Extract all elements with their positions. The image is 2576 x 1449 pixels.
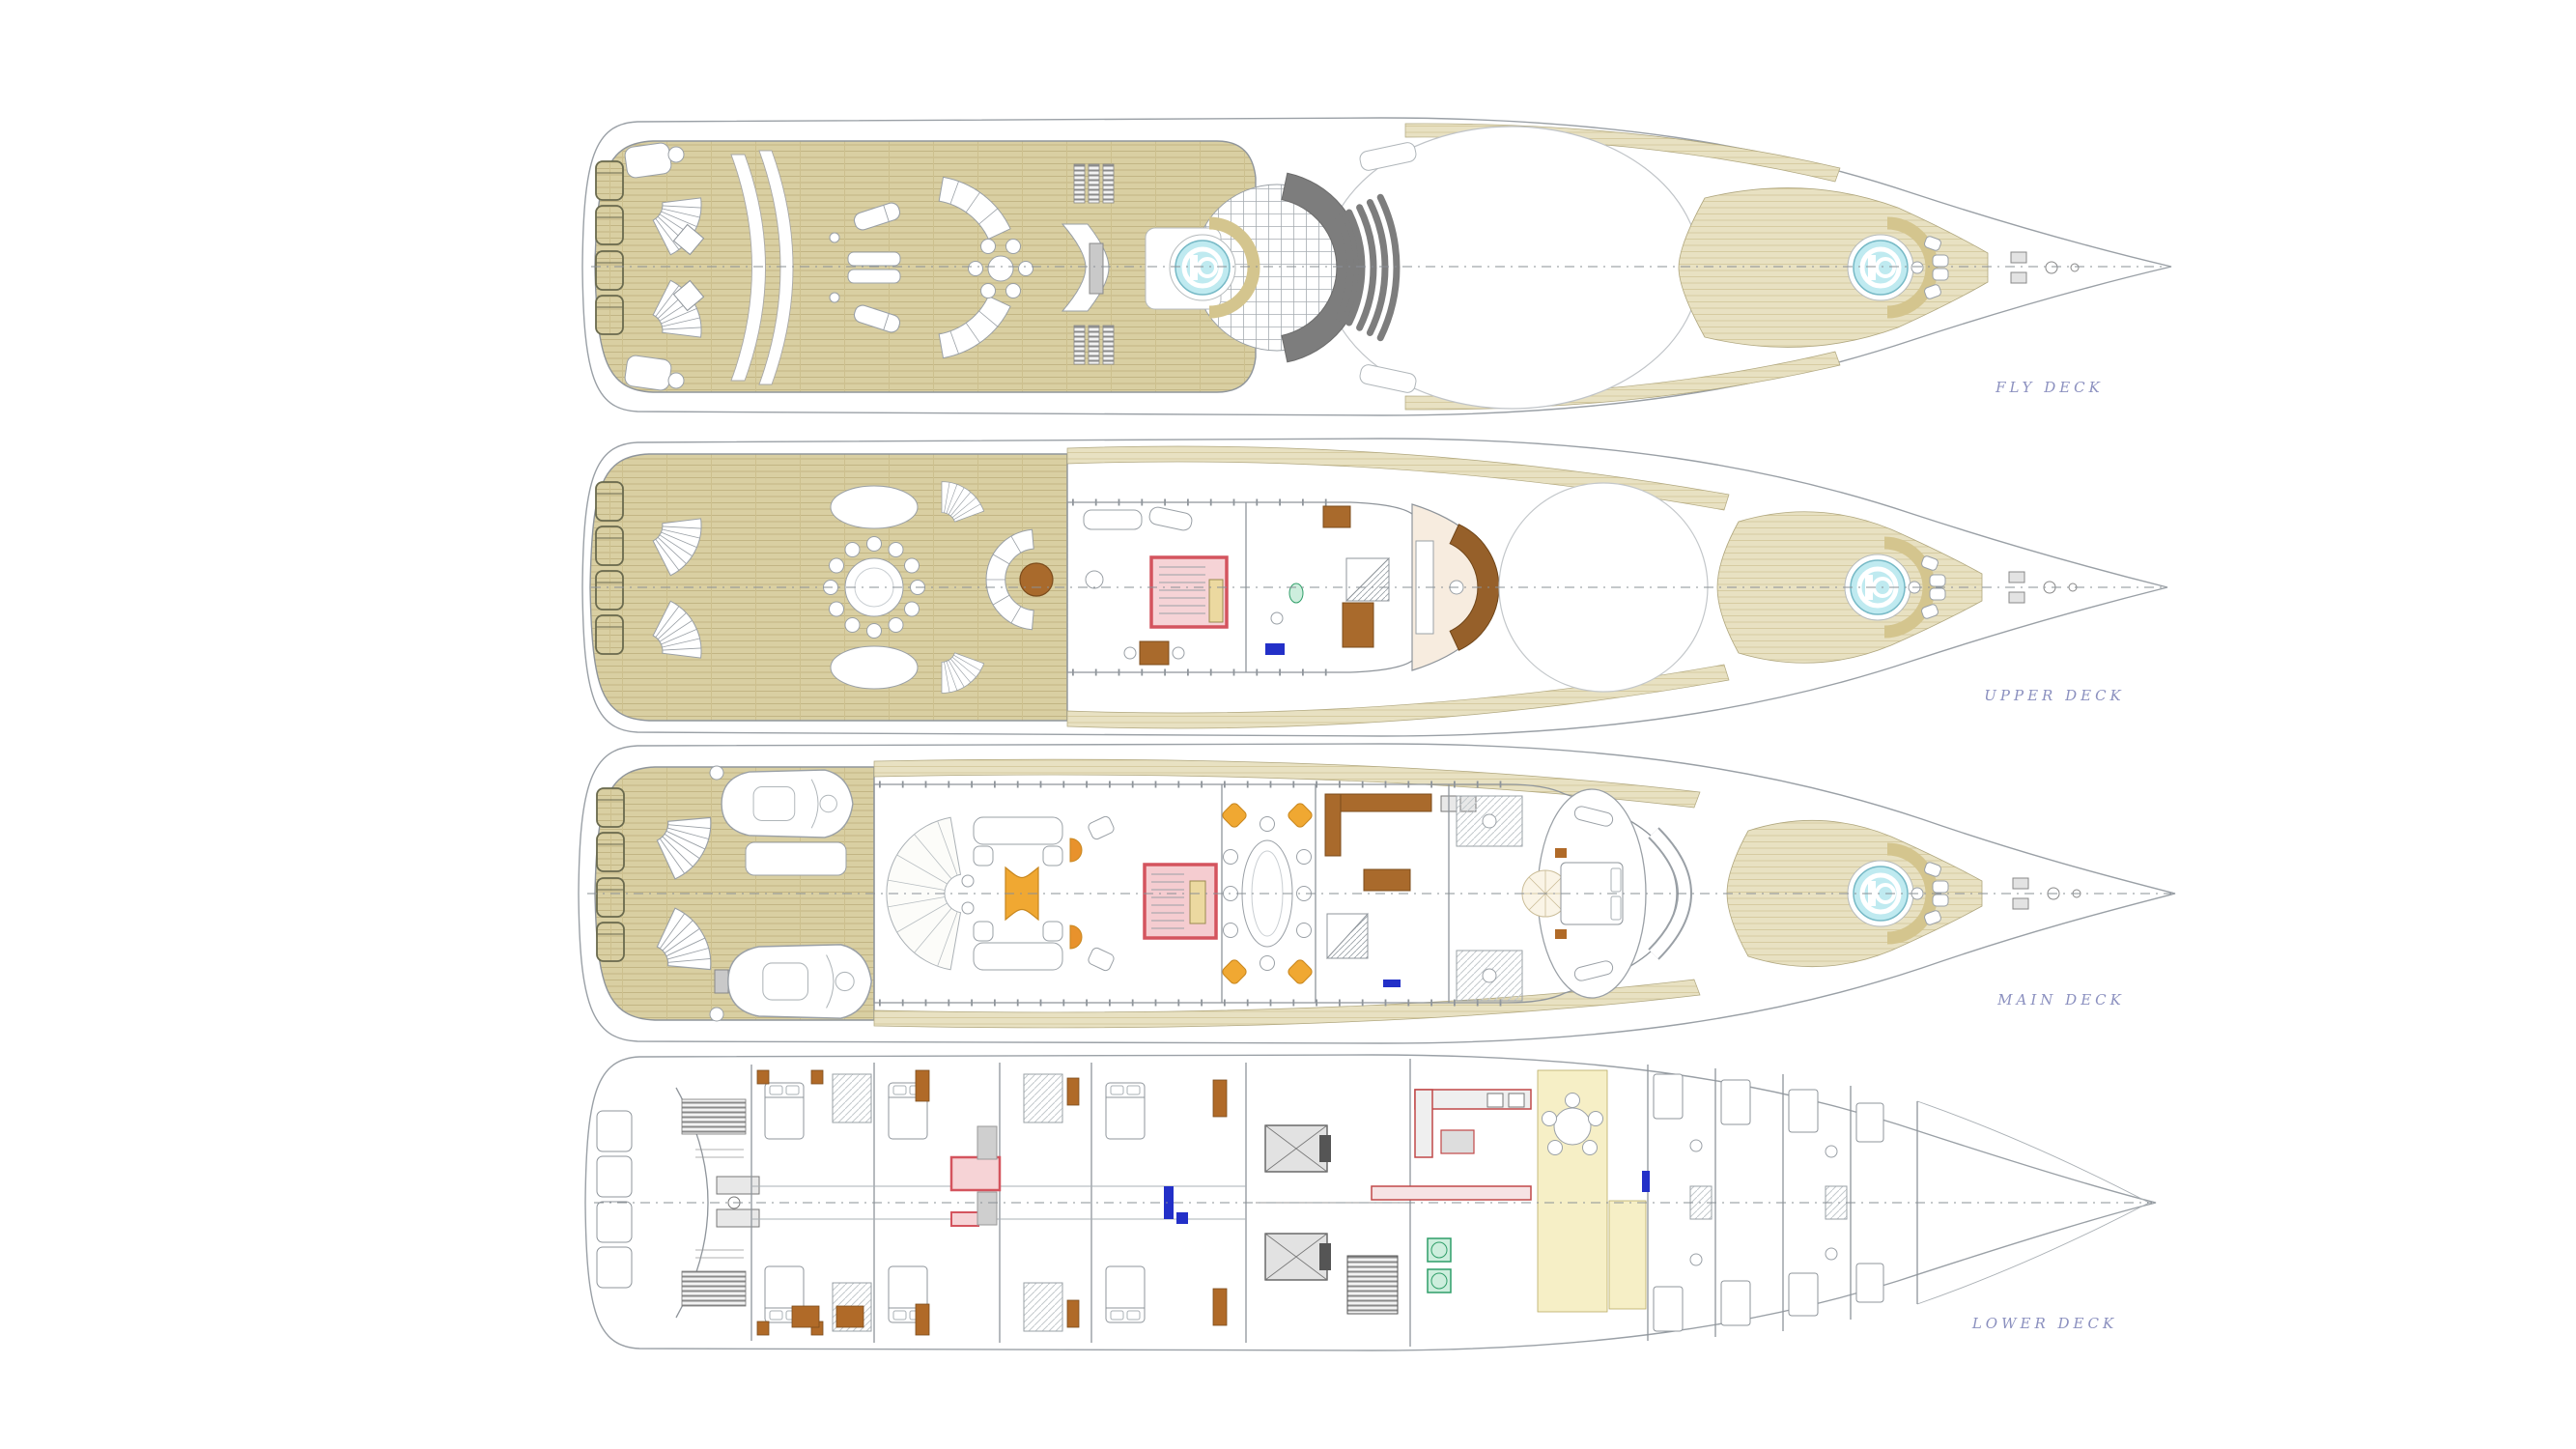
vent-grilles <box>1074 164 1114 203</box>
sun-deck-roof <box>1323 127 1700 409</box>
deck-label: UPPER DECK <box>1984 687 2125 704</box>
pantry-cabinet <box>1343 603 1373 647</box>
sink <box>1271 612 1283 624</box>
cabinet <box>1323 506 1350 527</box>
fixture-blue <box>1642 1171 1650 1192</box>
generator <box>1265 1125 1331 1172</box>
elevator <box>1209 580 1223 622</box>
lower-deck-plan: LOWER DECK <box>585 1055 2156 1350</box>
yacht-ga-drawing: FLY DECK <box>0 0 2576 1449</box>
upper-deck-plan: UPPER DECK <box>582 439 2167 736</box>
dressing-table <box>792 1306 819 1327</box>
en-suite <box>1024 1283 1062 1331</box>
nightstand <box>1555 848 1567 858</box>
stairwell <box>1151 557 1227 627</box>
appliance <box>1383 980 1401 987</box>
deck-label: FLY DECK <box>1995 379 2104 396</box>
elevator <box>977 1192 997 1225</box>
stairwell <box>1145 865 1216 938</box>
machinery-block <box>1347 1256 1398 1314</box>
generator <box>1265 1234 1331 1280</box>
elevator <box>1190 881 1205 923</box>
deck-label: MAIN DECK <box>1996 991 2125 1009</box>
ga-plan-canvas: FLY DECK <box>0 0 2576 1449</box>
fixture-blue <box>1164 1186 1174 1219</box>
fixture-blue <box>1176 1212 1188 1224</box>
main-deck-plan: MAIN DECK <box>579 744 2175 1043</box>
dressing-table <box>836 1306 863 1327</box>
day-head-wc <box>1265 643 1285 655</box>
nightstand <box>1555 929 1567 939</box>
en-suite <box>1024 1074 1062 1122</box>
en-suite <box>833 1074 871 1122</box>
stairs-down <box>1346 558 1389 601</box>
sun-bed <box>746 842 846 875</box>
fly-deck-plan: FLY DECK <box>582 118 2171 415</box>
sofa <box>1084 510 1142 529</box>
vent-grilles <box>1074 326 1114 364</box>
basin <box>1289 583 1303 603</box>
deck-label: LOWER DECK <box>1971 1315 2117 1332</box>
